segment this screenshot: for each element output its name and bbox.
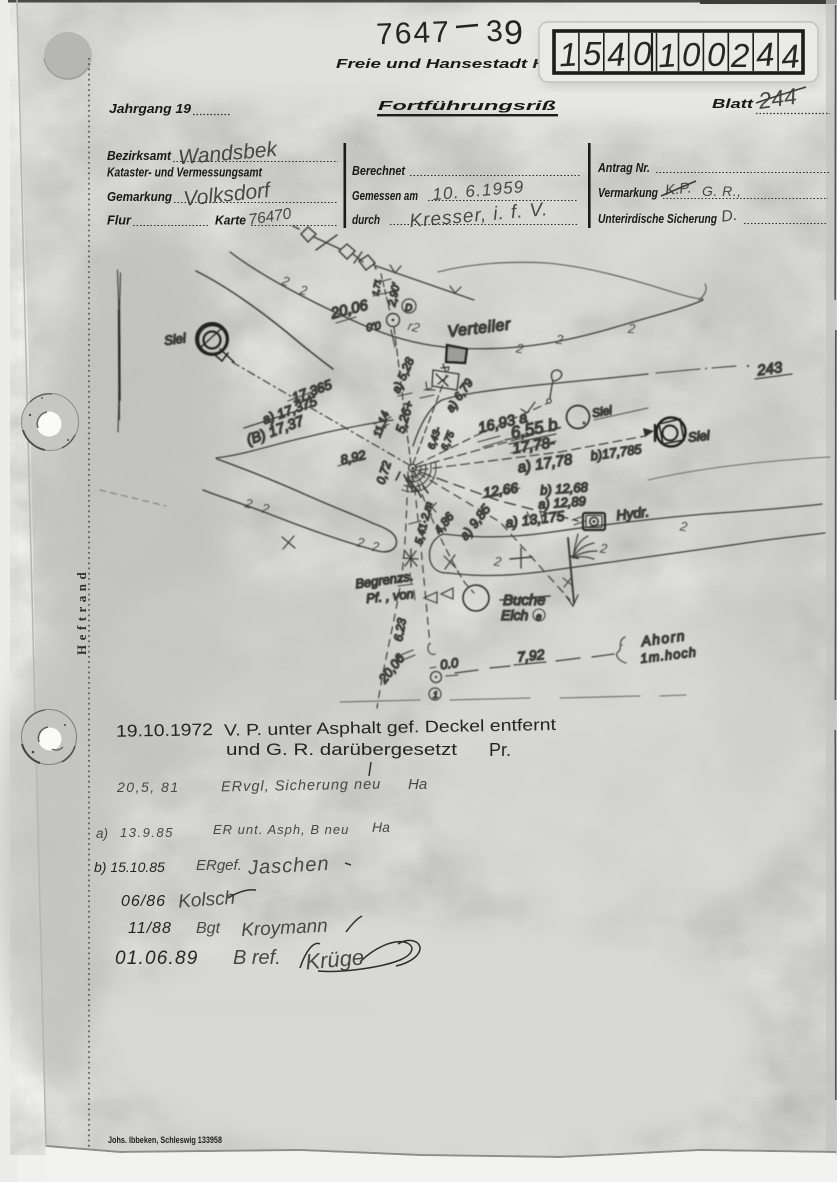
svg-text:Gemessen am: Gemessen am xyxy=(352,189,418,203)
svg-text:B ref.: B ref. xyxy=(233,947,281,969)
svg-text:Antrag Nr.: Antrag Nr. xyxy=(597,161,650,175)
svg-text:01.06.89: 01.06.89 xyxy=(115,948,199,969)
svg-text:ER unt. Asph, B neu: ER unt. Asph, B neu xyxy=(213,822,349,837)
svg-text:2: 2 xyxy=(730,37,749,74)
svg-text:Jaschen: Jaschen xyxy=(247,853,331,879)
svg-text:D: D xyxy=(405,303,412,314)
svg-text:G. R.,: G. R., xyxy=(702,183,742,199)
svg-text:06/86: 06/86 xyxy=(121,893,166,910)
svg-text:0: 0 xyxy=(707,36,726,73)
svg-text:Karte: Karte xyxy=(215,214,246,228)
svg-text:20,5, 81: 20,5, 81 xyxy=(116,779,180,795)
svg-text:0.0: 0.0 xyxy=(439,655,460,672)
svg-text:Siel: Siel xyxy=(687,427,711,444)
svg-text:Pr.: Pr. xyxy=(489,740,511,760)
svg-text:11/88: 11/88 xyxy=(128,920,172,937)
svg-text:Jahrgang 19: Jahrgang 19 xyxy=(109,102,191,116)
svg-text:Kolsch: Kolsch xyxy=(177,888,235,913)
svg-text:Freie und Hansestadt H: Freie und Hansestadt H xyxy=(336,57,547,71)
svg-text:Johs. Ibbeken, Schleswig 13395: Johs. Ibbeken, Schleswig 133958 xyxy=(108,1135,222,1146)
svg-text:Bgt: Bgt xyxy=(196,920,221,937)
svg-text:Flur: Flur xyxy=(107,214,132,228)
svg-text:Vermarkung: Vermarkung xyxy=(598,186,658,200)
svg-text:Siel: Siel xyxy=(163,330,188,348)
svg-text:1: 1 xyxy=(433,690,438,700)
svg-text:0: 0 xyxy=(633,35,652,72)
svg-text:Ha: Ha xyxy=(372,819,390,835)
svg-text:Bezirksamt: Bezirksamt xyxy=(107,149,172,163)
svg-text:e: e xyxy=(536,612,542,623)
svg-text:Kataster- und Vermessungsamt: Kataster- und Vermessungsamt xyxy=(107,166,263,180)
svg-text:durch: durch xyxy=(352,213,380,227)
svg-text:19.10.1972: 19.10.1972 xyxy=(116,720,213,741)
svg-text:a): a) xyxy=(96,826,108,841)
svg-text:1: 1 xyxy=(657,36,677,74)
svg-text:7647: 7647 xyxy=(376,16,452,52)
svg-text:ERgef.: ERgef. xyxy=(196,857,242,874)
svg-text:4: 4 xyxy=(755,35,776,73)
svg-text:Blatt: Blatt xyxy=(712,97,754,111)
svg-text:5: 5 xyxy=(583,35,602,72)
svg-text:Heftrand: Heftrand xyxy=(74,568,89,655)
svg-text:D.: D. xyxy=(720,207,738,226)
svg-text:Gemarkung: Gemarkung xyxy=(107,190,172,204)
svg-text:0: 0 xyxy=(682,36,701,73)
svg-text:4: 4 xyxy=(606,35,627,73)
svg-text:Ha: Ha xyxy=(408,776,427,793)
svg-text:1: 1 xyxy=(558,35,578,73)
svg-text:244: 244 xyxy=(756,83,799,114)
svg-text:4: 4 xyxy=(780,37,802,75)
svg-text:13.9.85: 13.9.85 xyxy=(120,825,174,840)
svg-text:9: 9 xyxy=(504,14,523,52)
svg-text:3: 3 xyxy=(485,15,503,49)
svg-text:ERvgl, Sicherung neu: ERvgl, Sicherung neu xyxy=(221,777,382,796)
svg-text:Unterirdische Sicherung: Unterirdische Sicherung xyxy=(598,212,717,226)
svg-text:und G. R. darübergesetzt: und G. R. darübergesetzt xyxy=(226,741,458,759)
svg-text:Berechnet: Berechnet xyxy=(352,164,406,178)
svg-text:Eich: Eich xyxy=(501,607,528,623)
svg-text:b) 15.10.85: b) 15.10.85 xyxy=(94,859,165,875)
svg-text:Fortführungsriß: Fortführungsriß xyxy=(378,99,557,113)
